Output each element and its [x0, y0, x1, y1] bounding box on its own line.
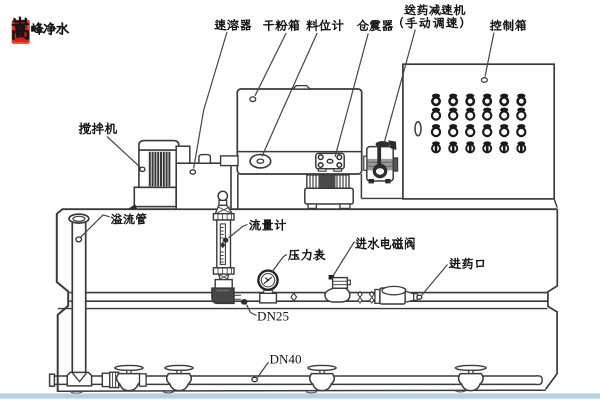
svg-text:DN25: DN25	[257, 309, 289, 324]
svg-text:DN40: DN40	[270, 352, 302, 367]
